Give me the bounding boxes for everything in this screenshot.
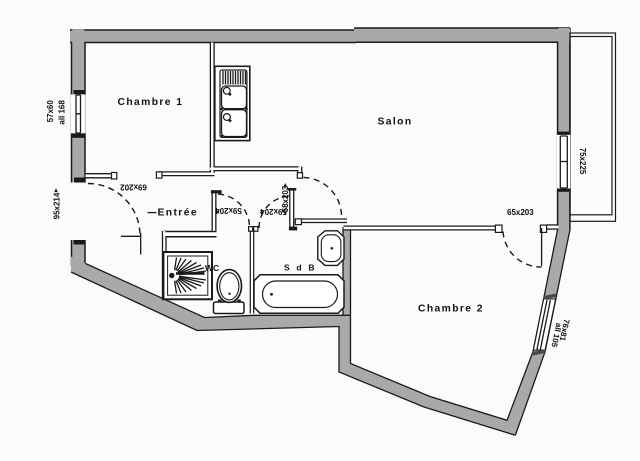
svg-text:Chambre 2: Chambre 2	[418, 304, 484, 315]
svg-text:WC: WC	[205, 263, 219, 273]
svg-text:95x214: 95x214	[53, 192, 62, 219]
svg-text:all 168: all 168	[58, 100, 67, 125]
svg-text:Salon: Salon	[378, 117, 413, 128]
svg-text:Entrée: Entrée	[158, 208, 198, 219]
svg-text:58x203: 58x203	[281, 185, 290, 212]
svg-text:S d B: S d B	[284, 263, 317, 273]
svg-text:69x202: 69x202	[120, 183, 147, 192]
svg-text:65x203: 65x203	[507, 208, 534, 217]
svg-text:57x60: 57x60	[46, 100, 55, 123]
svg-text:75x225: 75x225	[578, 148, 587, 175]
svg-text:Chambre 1: Chambre 1	[118, 97, 184, 108]
